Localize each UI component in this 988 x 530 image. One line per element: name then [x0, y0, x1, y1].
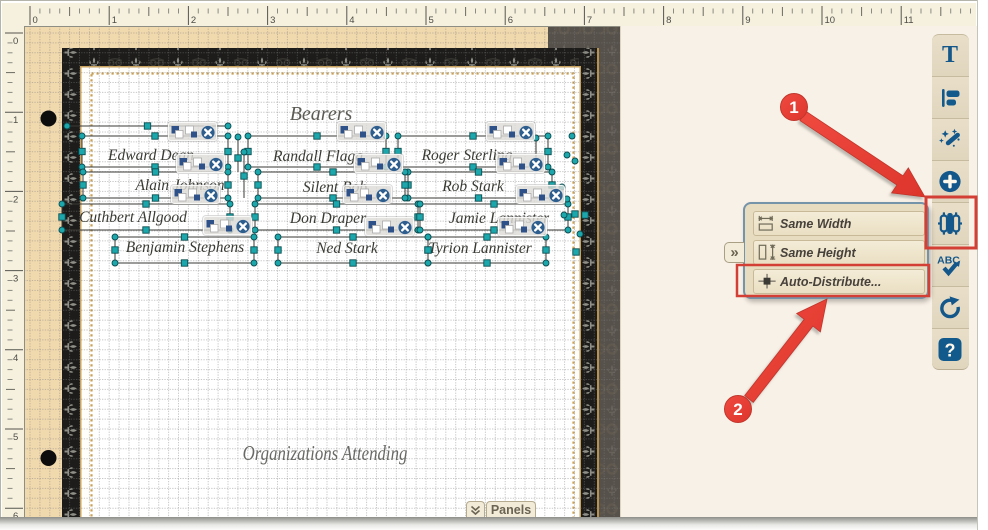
svg-text:2: 2 — [733, 400, 742, 419]
svg-text:1: 1 — [789, 98, 798, 117]
